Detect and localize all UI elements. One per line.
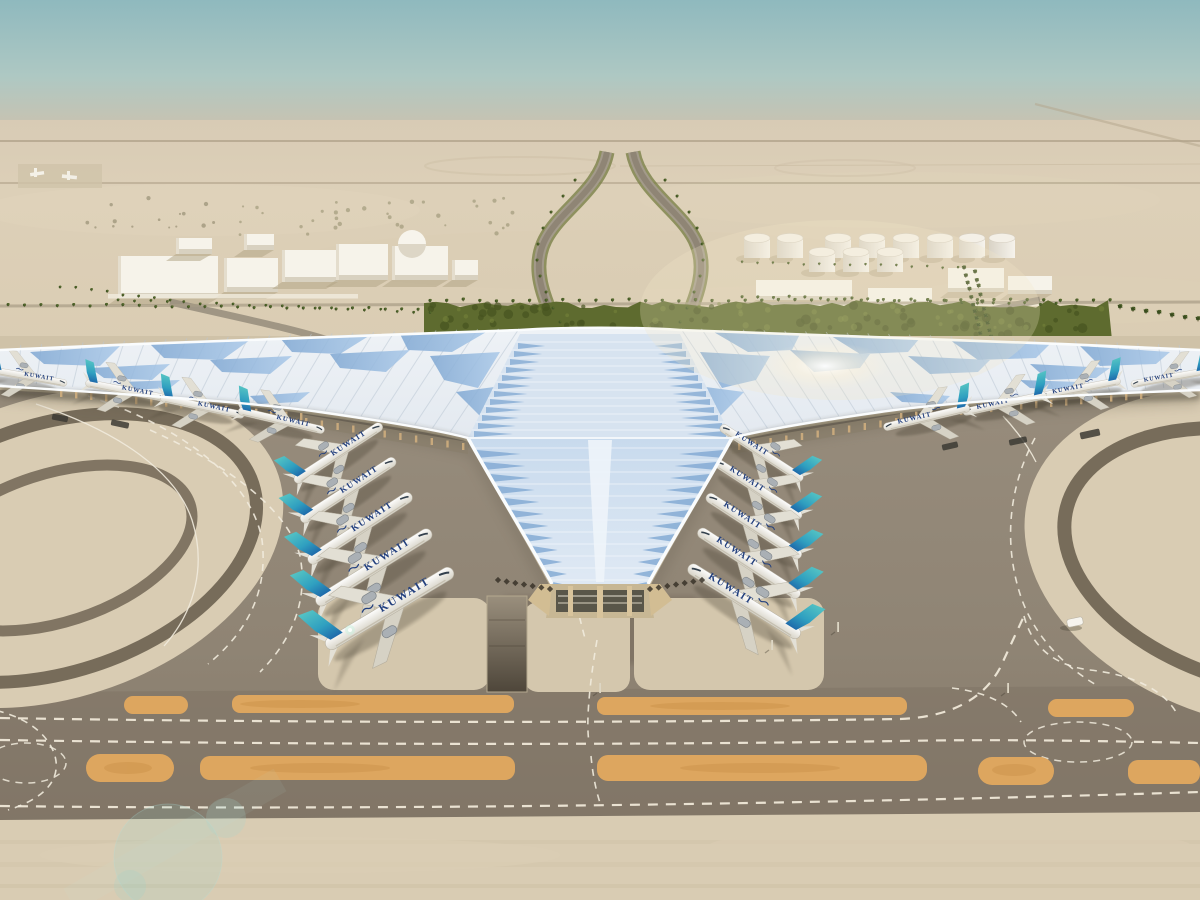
- palm-tree: [479, 299, 481, 301]
- palm-tree: [91, 288, 93, 290]
- palm-tree: [118, 299, 120, 301]
- palm-tree: [107, 290, 109, 292]
- palm-tree: [151, 299, 153, 301]
- palm-tree: [368, 306, 370, 308]
- palm-tree: [319, 307, 321, 309]
- scrub-dot: [113, 219, 117, 223]
- hedge-texture: [443, 316, 449, 322]
- pier-column: [336, 423, 338, 430]
- palm-tree: [551, 211, 553, 213]
- hedge-texture: [504, 309, 514, 319]
- tank-top: [989, 233, 1015, 242]
- palm-tree: [336, 307, 338, 309]
- warehouse: [224, 258, 278, 292]
- pier-column: [462, 443, 464, 450]
- hedge-texture: [513, 303, 516, 306]
- palm-tree: [216, 302, 218, 304]
- hedge-texture: [440, 321, 449, 330]
- palm-tree: [254, 306, 256, 308]
- palm-tree: [697, 227, 699, 229]
- scrub-dot: [399, 224, 403, 228]
- scrub-dot: [502, 197, 505, 200]
- palm-tree: [90, 305, 92, 307]
- pier-column: [832, 428, 834, 435]
- hedge-texture: [1074, 311, 1079, 316]
- palm-tree: [1040, 303, 1042, 305]
- palm-tree: [385, 308, 387, 310]
- scrub-dot: [110, 203, 113, 206]
- palm-tree: [1076, 298, 1078, 300]
- scrub-dot: [488, 221, 492, 225]
- scrub-dot: [179, 213, 181, 215]
- palm-tree: [134, 300, 136, 302]
- palm-tree: [1060, 299, 1062, 301]
- scrub-dot: [242, 205, 244, 207]
- scrub-dot: [311, 219, 314, 222]
- palm-tree: [1043, 298, 1045, 300]
- scrub-dot: [338, 222, 342, 226]
- building-side: [118, 256, 121, 298]
- palm-tree: [537, 259, 539, 261]
- scrub-dot: [175, 226, 177, 228]
- palm-tree: [8, 303, 10, 305]
- palm-tree: [397, 310, 399, 312]
- palm-tree: [543, 227, 545, 229]
- palm-tree: [430, 311, 432, 313]
- scrub-dot: [239, 233, 242, 236]
- palm-tree: [538, 243, 540, 245]
- scrub-dot: [388, 201, 391, 204]
- palm-tree: [265, 304, 267, 306]
- palm-tree: [665, 179, 667, 181]
- scrub-dot: [472, 199, 475, 202]
- palm-tree: [73, 303, 75, 305]
- palm-tree: [579, 299, 581, 301]
- hedge-texture: [462, 323, 468, 329]
- scrub-dot: [335, 217, 339, 221]
- scrub-dot: [334, 210, 338, 214]
- hedge-texture: [1073, 304, 1077, 308]
- hedge-texture: [1067, 308, 1072, 313]
- hedge-texture: [1078, 323, 1088, 333]
- palm-tree: [546, 299, 548, 301]
- hedge-texture: [542, 303, 550, 311]
- scrub-dot: [146, 196, 150, 200]
- palm-tree: [563, 195, 565, 197]
- palm-tree: [282, 305, 284, 307]
- palm-tree: [348, 308, 350, 310]
- warehouse: [118, 256, 218, 298]
- building-face: [336, 275, 388, 280]
- building-side: [336, 244, 339, 280]
- pier-column: [817, 431, 819, 438]
- palm-tree: [106, 303, 108, 305]
- scrub-dot: [492, 199, 496, 203]
- pier-column: [399, 433, 401, 440]
- palm-tree: [1110, 298, 1112, 300]
- palm-tree: [249, 304, 251, 306]
- pier-column: [75, 391, 77, 398]
- palm-tree: [154, 296, 156, 298]
- scrub-dot: [396, 223, 400, 227]
- palm-tree: [123, 294, 125, 296]
- pier-column: [848, 426, 850, 433]
- scrub-dot: [112, 225, 115, 228]
- building-side: [282, 250, 285, 282]
- scrub-dot: [321, 210, 324, 213]
- palm-tree: [139, 304, 141, 306]
- remote-stand: [18, 164, 102, 188]
- scrub-dot: [502, 227, 505, 230]
- palm-tree: [553, 307, 555, 309]
- palm-tree: [595, 299, 597, 301]
- service-ramp: [487, 596, 527, 692]
- scrub-dot: [388, 215, 392, 219]
- airport-aerial-rendering: Aerial daytime architectural rendering o…: [0, 0, 1200, 900]
- hedge-texture: [1053, 318, 1058, 323]
- apron-post: [599, 683, 601, 693]
- scrub-dot: [511, 211, 515, 215]
- scrub-dot: [255, 206, 258, 209]
- palm-tree: [418, 308, 420, 310]
- hedge-texture: [478, 314, 484, 320]
- scrub-dot: [158, 218, 161, 221]
- palm-tree: [689, 211, 691, 213]
- palm-tree: [352, 306, 354, 308]
- building-face: [452, 275, 478, 280]
- building-face: [392, 275, 448, 280]
- hedge-texture: [1099, 306, 1105, 312]
- scrub-dot: [168, 226, 170, 228]
- palm-tree: [1093, 299, 1095, 301]
- hedge-texture: [581, 305, 585, 309]
- palm-tree: [167, 300, 169, 302]
- hedge-texture: [457, 308, 461, 312]
- hedge-texture: [522, 311, 529, 318]
- hedge-texture: [1045, 325, 1053, 333]
- building-side: [224, 258, 227, 292]
- palm-tree: [513, 299, 515, 301]
- pier-column: [431, 438, 433, 445]
- palm-tree: [401, 307, 403, 309]
- palm-tree: [546, 291, 548, 293]
- palm-tree: [1056, 302, 1058, 304]
- hedge-texture: [614, 310, 617, 313]
- palm-tree: [170, 299, 172, 301]
- apron-post: [1007, 683, 1009, 693]
- hedge-texture: [520, 305, 525, 310]
- palm-tree: [430, 299, 432, 301]
- palm-tree: [172, 305, 174, 307]
- hedge-texture: [537, 307, 540, 310]
- palm-tree: [702, 243, 704, 245]
- scrub-dot: [422, 200, 425, 203]
- palm-tree: [237, 305, 239, 307]
- building-side: [244, 234, 247, 250]
- pier-column: [879, 421, 881, 428]
- palm-tree: [540, 275, 542, 277]
- scrub-dot: [334, 226, 338, 230]
- palm-tree: [560, 321, 562, 323]
- palm-tree: [677, 195, 679, 197]
- scrub-dot: [261, 212, 263, 214]
- palm-tree: [575, 179, 577, 181]
- scrub-dot: [410, 200, 414, 204]
- palm-tree: [270, 305, 272, 307]
- palm-tree: [221, 305, 223, 307]
- palm-tree: [380, 308, 382, 310]
- building-face: [176, 249, 212, 254]
- pier-column: [415, 436, 417, 443]
- hedge-texture: [494, 303, 502, 311]
- building-side: [392, 246, 395, 280]
- hedge-texture: [1073, 326, 1078, 331]
- palm-tree: [200, 303, 202, 305]
- palm-tree: [183, 300, 185, 302]
- hedge-texture: [577, 320, 585, 328]
- palm-tree: [188, 305, 190, 307]
- palm-tree: [24, 304, 26, 306]
- scrub-dot: [506, 223, 510, 227]
- scrub-dot: [494, 231, 498, 235]
- scrub-dot: [85, 221, 89, 225]
- palm-tree: [496, 299, 498, 301]
- scene-canvas: KUWAIT: [0, 0, 1200, 900]
- palm-tree: [204, 305, 206, 307]
- scrub-dot: [299, 225, 302, 228]
- palm-tree: [529, 299, 531, 301]
- scrub-dot: [386, 212, 389, 215]
- scrub-dot: [335, 201, 338, 204]
- scrub-dot: [436, 213, 440, 217]
- hedge-texture: [570, 321, 575, 326]
- scrub-dot: [204, 202, 208, 206]
- hedge-texture: [464, 314, 469, 319]
- scrub-dot: [182, 212, 186, 216]
- palm-tree: [364, 309, 366, 311]
- palm-tree: [562, 298, 564, 300]
- apron-post: [837, 622, 839, 632]
- building-face: [224, 287, 278, 292]
- hedge-texture: [565, 313, 569, 317]
- hedge-texture: [428, 306, 434, 312]
- palm-tree: [57, 304, 59, 306]
- pier-column: [801, 433, 803, 440]
- hedge-texture: [1042, 324, 1045, 327]
- palm-tree: [286, 307, 288, 309]
- palm-tree: [612, 298, 614, 300]
- scrub-dot: [475, 205, 478, 208]
- pier-column: [864, 423, 866, 430]
- scrub-dot: [306, 232, 309, 235]
- scrub-dot: [201, 223, 205, 227]
- palm-tree: [463, 298, 465, 300]
- apron-post: [771, 640, 773, 650]
- palm-tree: [40, 303, 42, 305]
- palm-tree: [303, 307, 305, 309]
- scrub-dot: [212, 221, 215, 224]
- warehouse: [336, 244, 388, 280]
- palm-tree: [315, 307, 317, 309]
- hedge-texture: [489, 318, 494, 323]
- palm-tree: [298, 305, 300, 307]
- palm-tree: [413, 311, 415, 313]
- palm-tree: [233, 303, 235, 305]
- building-side: [452, 260, 455, 280]
- hedge-texture: [472, 304, 478, 310]
- palm-tree: [155, 305, 157, 307]
- palm-tree: [60, 286, 62, 288]
- palm-tree: [331, 307, 333, 309]
- palm-tree: [446, 299, 448, 301]
- scrub-dot: [239, 221, 242, 224]
- pier-column: [446, 441, 448, 448]
- palm-tree: [138, 295, 140, 297]
- scrub-dot: [362, 206, 366, 210]
- palm-tree: [75, 286, 77, 288]
- scrub-dot: [131, 225, 133, 227]
- scrub-dot: [346, 208, 350, 212]
- palm-tree: [629, 297, 631, 299]
- pier-column: [352, 426, 354, 433]
- sun-glare: [640, 220, 1040, 400]
- building-face: [282, 277, 338, 282]
- building-face: [244, 245, 274, 250]
- building-side: [176, 238, 179, 254]
- pier-column: [384, 431, 386, 438]
- palm-tree: [122, 303, 124, 305]
- scrub-dot: [94, 226, 96, 228]
- scrub-dot: [444, 224, 446, 226]
